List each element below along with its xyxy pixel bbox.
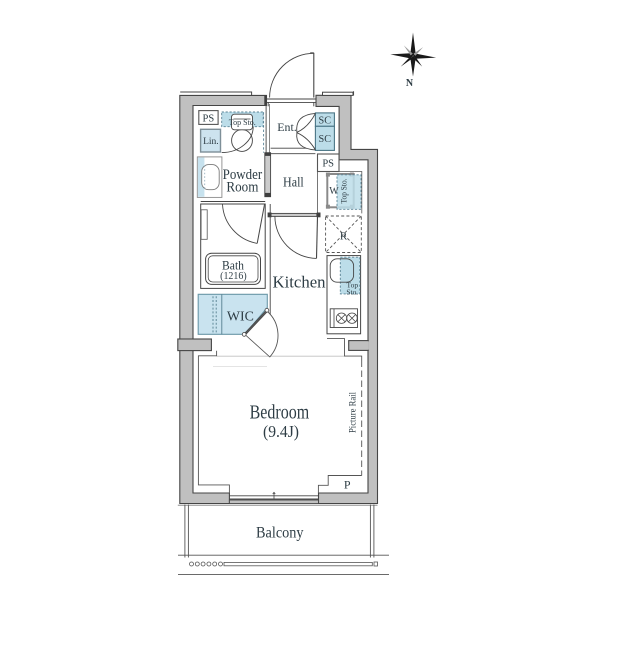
svg-text:Picture Rail: Picture Rail <box>348 392 358 433</box>
svg-text:(1216): (1216) <box>220 271 247 282</box>
svg-text:PS: PS <box>322 159 334 170</box>
svg-text:PS: PS <box>203 114 215 125</box>
svg-text:Top Sto.: Top Sto. <box>229 118 256 127</box>
svg-text:Sto.: Sto. <box>346 288 358 297</box>
svg-text:SC: SC <box>319 134 332 145</box>
svg-text:(9.4J): (9.4J) <box>263 422 299 441</box>
svg-text:Bedroom: Bedroom <box>250 401 310 423</box>
svg-text:Ent.: Ent. <box>277 122 297 134</box>
svg-text:Kitchen: Kitchen <box>273 273 326 292</box>
svg-text:Room: Room <box>226 179 259 195</box>
svg-text:P: P <box>344 478 351 492</box>
svg-text:Lin.: Lin. <box>203 137 219 147</box>
svg-text:W: W <box>329 186 339 197</box>
svg-text:Top Sto.: Top Sto. <box>340 179 349 204</box>
svg-text:N: N <box>406 78 414 89</box>
svg-text:Hall: Hall <box>283 176 304 191</box>
svg-text:Balcony: Balcony <box>256 525 304 542</box>
svg-text:R: R <box>340 231 348 243</box>
svg-text:WIC: WIC <box>227 309 254 324</box>
svg-text:SC: SC <box>319 115 332 126</box>
